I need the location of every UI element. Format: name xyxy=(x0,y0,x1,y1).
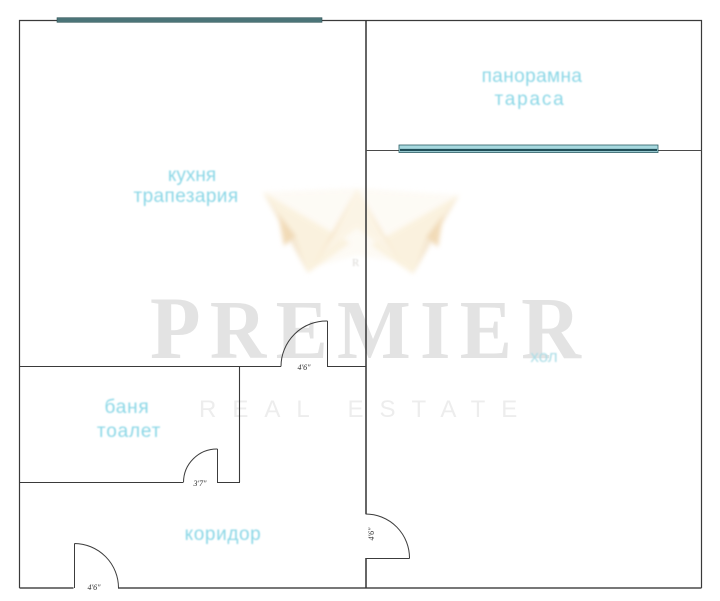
svg-text:R: R xyxy=(352,257,360,269)
svg-text:кухня: кухня xyxy=(168,165,216,186)
svg-text:3'7": 3'7" xyxy=(192,479,207,488)
svg-text:4'6": 4'6" xyxy=(367,527,376,541)
svg-text:баня: баня xyxy=(105,397,150,418)
svg-text:4'6": 4'6" xyxy=(87,583,101,592)
svg-text:PREMIER: PREMIER xyxy=(150,278,590,377)
svg-text:4'6": 4'6" xyxy=(297,363,311,372)
svg-text:хол: хол xyxy=(530,347,557,366)
svg-text:коридор: коридор xyxy=(185,524,262,545)
svg-text:тоалет: тоалет xyxy=(97,421,161,442)
svg-text:тараса: тараса xyxy=(494,89,565,110)
svg-text:панорамна: панорамна xyxy=(482,66,583,87)
svg-text:трапезария: трапезария xyxy=(133,186,238,207)
